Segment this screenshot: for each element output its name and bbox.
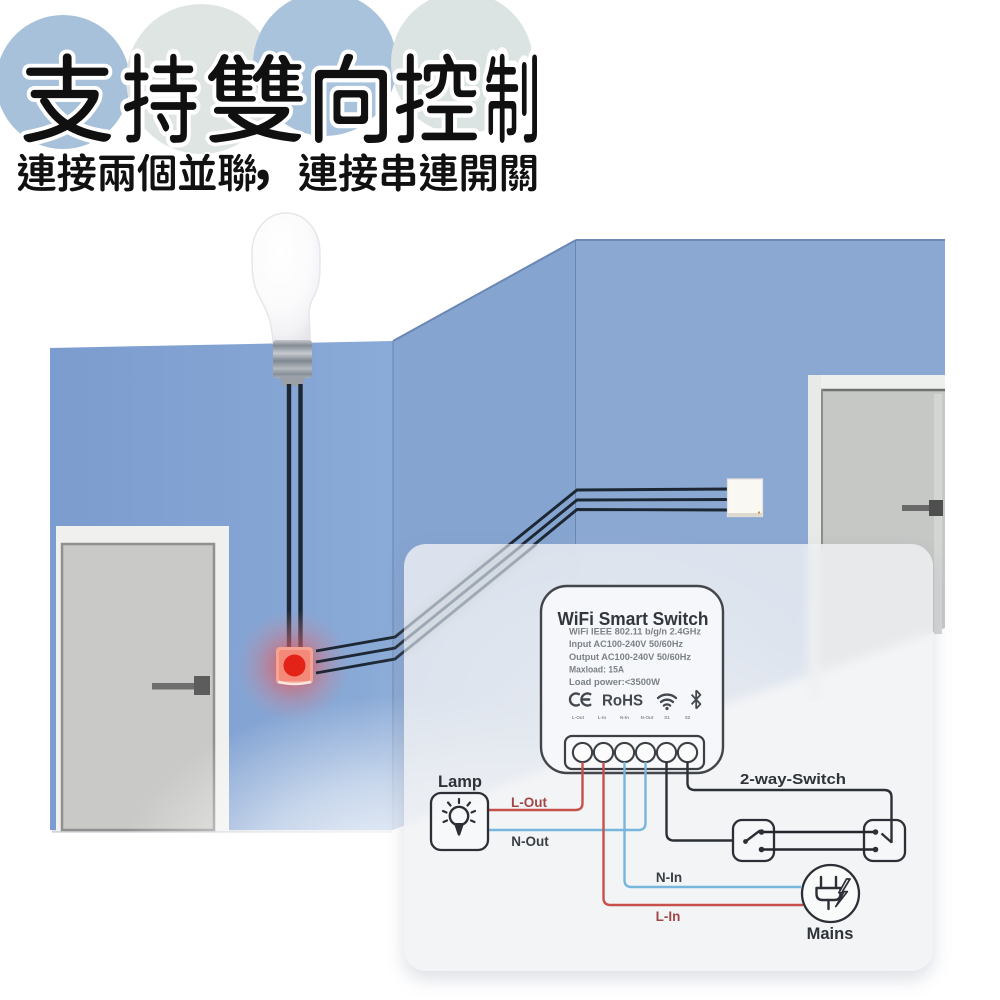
svg-text:Output AC100-240V 50/60Hz: Output AC100-240V 50/60Hz <box>569 652 691 662</box>
svg-text:Mains: Mains <box>807 925 854 943</box>
svg-text:WiFi IEEE 802.11 b/g/n 2.4GHz: WiFi IEEE 802.11 b/g/n 2.4GHz <box>569 627 702 637</box>
svg-text:2-way-Switch: 2-way-Switch <box>740 771 846 788</box>
svg-text:Load power:<3500W: Load power:<3500W <box>569 677 661 687</box>
svg-text:RoHS: RoHS <box>602 693 643 710</box>
svg-text:Lamp: Lamp <box>438 773 482 791</box>
svg-text:S2: S2 <box>685 715 691 720</box>
svg-text:L-In: L-In <box>656 909 681 924</box>
svg-text:N-In: N-In <box>656 870 682 885</box>
svg-text:Maxload: 15A: Maxload: 15A <box>569 665 624 675</box>
svg-text:L-Out: L-Out <box>511 795 547 810</box>
svg-text:N-In: N-In <box>620 715 629 720</box>
svg-text:N-Out: N-Out <box>511 834 549 849</box>
svg-text:N-Out: N-Out <box>641 715 654 720</box>
svg-text:Input AC100-240V 50/60Hz: Input AC100-240V 50/60Hz <box>569 639 683 649</box>
svg-text:S1: S1 <box>664 715 670 720</box>
svg-text:L-In: L-In <box>598 715 607 720</box>
svg-text:L-Out: L-Out <box>572 715 585 720</box>
